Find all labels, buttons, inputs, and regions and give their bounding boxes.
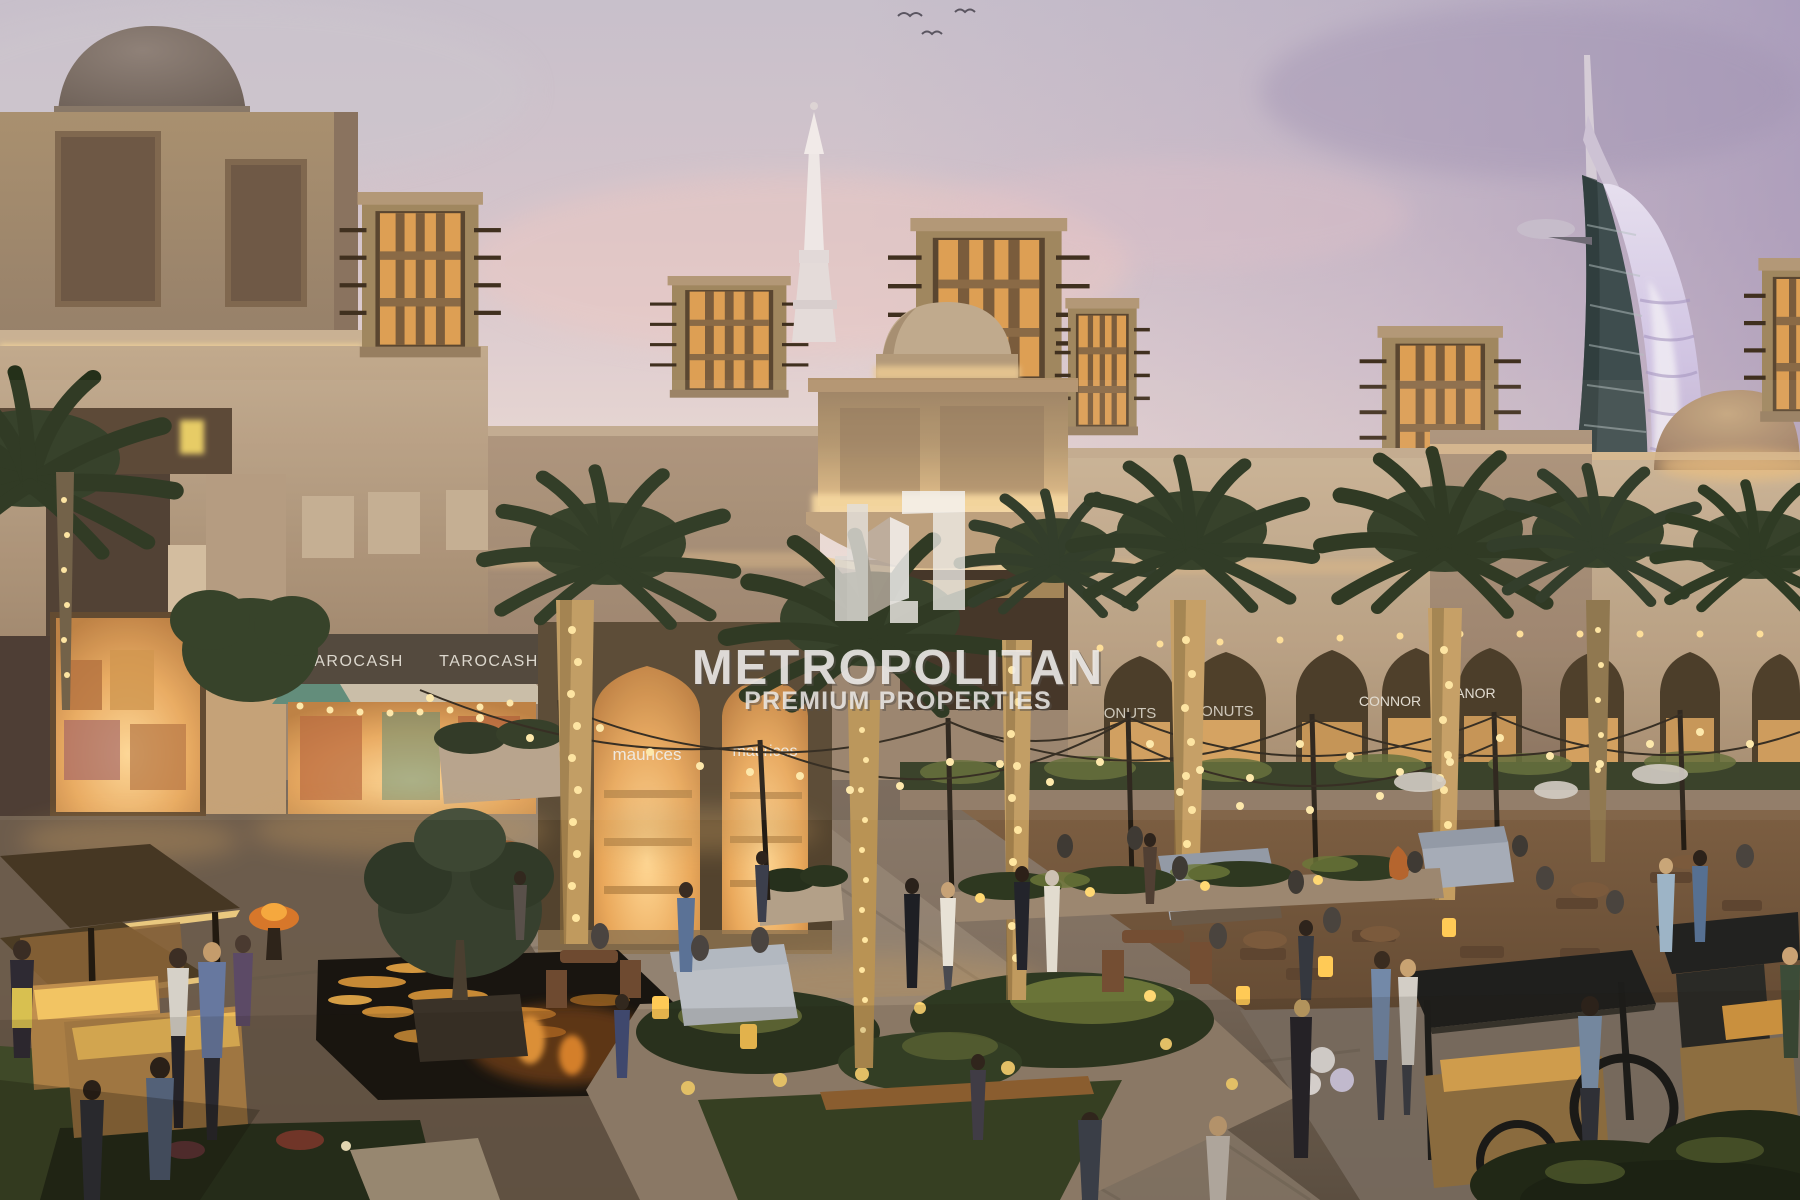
svg-text:PREMIUM PROPERTIES: PREMIUM PROPERTIES [744,687,1052,715]
